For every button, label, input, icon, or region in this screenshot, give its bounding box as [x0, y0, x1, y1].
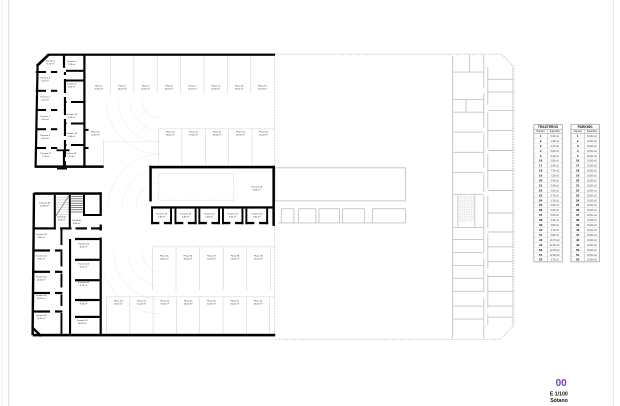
- svg-text:Plaza 23: Plaza 23: [236, 131, 245, 133]
- svg-text:Número: Número: [537, 130, 546, 133]
- svg-text:Trastero 9: Trastero 9: [40, 134, 51, 137]
- svg-text:50: 50: [576, 248, 580, 252]
- svg-text:3,70 m2: 3,70 m2: [551, 146, 560, 148]
- svg-text:17: 17: [539, 164, 543, 168]
- svg-text:16,00 m2: 16,00 m2: [587, 171, 597, 173]
- svg-text:52: 52: [539, 258, 543, 262]
- svg-text:16,00 m2: 16,00 m2: [587, 230, 597, 232]
- svg-text:Trastero 15: Trastero 15: [66, 132, 78, 135]
- svg-text:5,45 m²: 5,45 m²: [68, 116, 76, 119]
- svg-text:16,00 m2: 16,00 m2: [587, 161, 597, 163]
- svg-text:5,40 m²: 5,40 m²: [41, 118, 49, 121]
- svg-text:16,00 m2: 16,00 m2: [587, 141, 597, 143]
- svg-text:Trastero 23: Trastero 23: [78, 243, 90, 246]
- svg-text:5,40 m2: 5,40 m2: [551, 220, 560, 222]
- svg-text:Superficie: Superficie: [587, 130, 598, 133]
- svg-text:Trastero 22: Trastero 22: [227, 212, 239, 215]
- svg-text:40: 40: [576, 228, 580, 232]
- svg-text:24: 24: [539, 198, 543, 202]
- svg-text:16,00 m2: 16,00 m2: [587, 220, 597, 222]
- svg-text:9,85 m²: 9,85 m²: [253, 188, 261, 191]
- svg-text:16,00 m2: 16,00 m2: [587, 215, 597, 217]
- svg-text:16,00 m²: 16,00 m²: [114, 302, 123, 305]
- svg-text:16,00 m²: 16,00 m²: [118, 88, 127, 91]
- svg-text:5,85 m²: 5,85 m²: [253, 215, 261, 218]
- svg-text:16,00 m²: 16,00 m²: [211, 88, 220, 91]
- svg-text:16,00 m2: 16,00 m2: [587, 156, 597, 158]
- svg-text:16,00 m²: 16,00 m²: [184, 302, 193, 305]
- svg-text:16,00 m2: 16,00 m2: [587, 185, 597, 187]
- svg-text:42: 42: [576, 238, 580, 242]
- svg-text:7,70 m²: 7,70 m²: [42, 155, 50, 158]
- svg-text:Plaza 51: Plaza 51: [230, 300, 239, 302]
- svg-text:Trastero 19: Trastero 19: [156, 212, 168, 215]
- svg-text:3,70 m2: 3,70 m2: [551, 200, 560, 202]
- svg-text:38: 38: [539, 218, 543, 222]
- svg-text:5,40 m2: 5,40 m2: [551, 210, 560, 212]
- svg-text:36: 36: [576, 208, 580, 212]
- svg-text:16,00 m2: 16,00 m2: [587, 181, 597, 183]
- svg-text:PARKING: PARKING: [578, 125, 593, 129]
- svg-text:12,80 m²: 12,80 m²: [40, 204, 49, 207]
- svg-text:16,00 m²: 16,00 m²: [236, 133, 245, 136]
- svg-text:16,00 m²: 16,00 m²: [165, 88, 174, 91]
- svg-text:16,00 m²: 16,00 m²: [230, 302, 239, 305]
- svg-text:5,85 m²: 5,85 m²: [68, 85, 76, 88]
- svg-text:8,55 m²: 8,55 m²: [80, 246, 88, 249]
- svg-text:16,00 m²: 16,00 m²: [188, 88, 197, 91]
- svg-text:Plaza 19: Plaza 19: [258, 86, 267, 88]
- svg-text:Trastero 33: Trastero 33: [36, 233, 48, 236]
- svg-text:18: 18: [539, 169, 543, 173]
- svg-text:5,85 m²: 5,85 m²: [182, 215, 190, 218]
- svg-text:11,95 m2: 11,95 m2: [550, 245, 560, 247]
- svg-text:5,85 m²: 5,85 m²: [158, 215, 166, 218]
- svg-text:39: 39: [576, 223, 580, 227]
- svg-text:16,00 m²: 16,00 m²: [235, 88, 244, 91]
- svg-text:Trastero 45: Trastero 45: [251, 185, 263, 188]
- svg-text:16,00 m2: 16,00 m2: [587, 195, 597, 197]
- svg-text:41: 41: [576, 233, 580, 237]
- svg-text:16,00 m²: 16,00 m²: [166, 133, 175, 136]
- svg-text:10,05 m²: 10,05 m²: [78, 322, 87, 325]
- svg-text:16,00 m²: 16,00 m²: [207, 257, 216, 260]
- svg-text:Sótano: Sótano: [550, 398, 568, 404]
- svg-text:8,70 m²: 8,70 m²: [80, 302, 88, 305]
- svg-text:16,00 m2: 16,00 m2: [587, 260, 597, 262]
- svg-text:16,00 m2: 16,00 m2: [587, 205, 597, 207]
- svg-text:20: 20: [539, 179, 543, 183]
- svg-text:4,95 m²: 4,95 m²: [73, 222, 81, 225]
- svg-text:Plaza 25: Plaza 25: [160, 255, 169, 257]
- svg-text:Plaza 43: Plaza 43: [184, 300, 193, 302]
- svg-text:5,85 m²: 5,85 m²: [229, 215, 237, 218]
- svg-text:Plaza 50: Plaza 50: [207, 300, 216, 302]
- svg-text:16,00 m²: 16,00 m²: [258, 88, 267, 91]
- svg-text:16,00 m²: 16,00 m²: [141, 88, 150, 91]
- svg-text:25: 25: [539, 203, 543, 207]
- svg-text:Trastero 46: Trastero 46: [35, 314, 47, 317]
- svg-text:12,80 m2: 12,80 m2: [550, 255, 560, 257]
- svg-text:12,45 m2: 12,45 m2: [550, 250, 560, 252]
- svg-text:16,00 m2: 16,00 m2: [587, 250, 597, 252]
- svg-text:51: 51: [539, 253, 543, 257]
- svg-text:43: 43: [539, 243, 543, 247]
- svg-text:5,40 m2: 5,40 m2: [551, 166, 560, 168]
- svg-text:8,70 m²: 8,70 m²: [80, 266, 88, 269]
- svg-text:Plaza 42: Plaza 42: [161, 300, 170, 302]
- svg-text:16,00 m²: 16,00 m²: [160, 257, 169, 260]
- svg-text:00: 00: [556, 378, 568, 389]
- svg-text:Trastero 25: Trastero 25: [78, 281, 90, 284]
- svg-text:10,05 m²: 10,05 m²: [37, 297, 46, 300]
- svg-text:16,00 m2: 16,00 m2: [587, 225, 597, 227]
- svg-text:Plaza 36: Plaza 36: [184, 255, 193, 257]
- svg-text:5,40 m2: 5,40 m2: [551, 156, 560, 158]
- svg-text:4,90 m²: 4,90 m²: [58, 219, 66, 222]
- svg-text:Plaza 39: Plaza 39: [254, 255, 263, 257]
- svg-text:3,80 m2: 3,80 m2: [551, 225, 560, 227]
- svg-text:Trastero 41: Trastero 41: [36, 255, 48, 258]
- svg-text:Plaza 22: Plaza 22: [213, 131, 222, 133]
- svg-text:16,00 m²: 16,00 m²: [254, 257, 263, 260]
- svg-text:22: 22: [539, 188, 543, 192]
- svg-text:20: 20: [576, 179, 580, 183]
- svg-text:16,00 m2: 16,00 m2: [587, 210, 597, 212]
- svg-text:Plaza 38: Plaza 38: [231, 255, 240, 257]
- svg-text:5,20 m2: 5,20 m2: [551, 151, 560, 153]
- svg-text:10,20 m²: 10,20 m²: [37, 317, 46, 320]
- svg-text:25: 25: [576, 203, 580, 207]
- svg-text:Plaza 21: Plaza 21: [189, 131, 198, 133]
- svg-text:39: 39: [539, 223, 543, 227]
- svg-text:Vestíbulo: Vestíbulo: [72, 219, 82, 222]
- svg-text:Trastero 11: Trastero 11: [40, 152, 52, 155]
- svg-text:17: 17: [576, 164, 580, 168]
- svg-text:Trastero 5: Trastero 5: [40, 96, 51, 99]
- svg-text:Plaza 3: Plaza 3: [142, 86, 150, 88]
- svg-text:38: 38: [576, 218, 580, 222]
- svg-text:23: 23: [539, 193, 543, 197]
- svg-text:42: 42: [539, 238, 543, 242]
- svg-text:Plaza 40: Plaza 40: [114, 300, 123, 302]
- svg-text:Plaza 18: Plaza 18: [235, 86, 244, 88]
- svg-text:10,70 m2: 10,70 m2: [550, 240, 560, 242]
- svg-text:Plaza 2: Plaza 2: [118, 86, 126, 88]
- svg-text:16,00 m2: 16,00 m2: [587, 240, 597, 242]
- svg-text:16,00 m²: 16,00 m²: [259, 133, 268, 136]
- svg-text:19: 19: [539, 174, 543, 178]
- svg-text:Trastero 16: Trastero 16: [65, 152, 77, 155]
- svg-text:8,85 m²: 8,85 m²: [38, 236, 46, 239]
- svg-text:Trastero 31: Trastero 31: [76, 319, 88, 322]
- svg-text:52: 52: [576, 258, 580, 262]
- svg-text:16,00 m²: 16,00 m²: [213, 133, 222, 136]
- svg-text:Plaza 4: Plaza 4: [165, 86, 173, 88]
- svg-text:Trastero 42: Trastero 42: [35, 276, 47, 279]
- svg-text:Plaza 5: Plaza 5: [189, 86, 197, 88]
- svg-text:E 1/100: E 1/100: [550, 391, 568, 397]
- svg-text:50: 50: [539, 248, 543, 252]
- svg-text:7,20 m²: 7,20 m²: [67, 155, 75, 158]
- svg-text:16,00 m²: 16,00 m²: [160, 302, 169, 305]
- svg-text:37: 37: [539, 213, 543, 217]
- svg-text:5,40 m²: 5,40 m²: [68, 135, 76, 138]
- svg-text:3,50 m2: 3,50 m2: [551, 190, 560, 192]
- svg-text:Trastero 20: Trastero 20: [180, 212, 192, 215]
- svg-text:Trastero 3: Trastero 3: [40, 76, 51, 79]
- svg-text:16,00 m²: 16,00 m²: [91, 133, 100, 136]
- svg-text:16,00 m²: 16,00 m²: [94, 88, 103, 91]
- svg-text:16,00 m²: 16,00 m²: [189, 133, 198, 136]
- svg-text:51: 51: [576, 253, 580, 257]
- svg-text:Trastero 44: Trastero 44: [39, 201, 51, 204]
- svg-text:3,80 m2: 3,80 m2: [551, 235, 560, 237]
- svg-text:21: 21: [576, 183, 580, 187]
- svg-text:3,70 m2: 3,70 m2: [551, 260, 560, 262]
- svg-text:40: 40: [539, 228, 543, 232]
- svg-text:5,40 m2: 5,40 m2: [551, 136, 560, 138]
- svg-text:7,25 m²: 7,25 m²: [68, 63, 76, 66]
- svg-text:5,50 m2: 5,50 m2: [551, 205, 560, 207]
- svg-text:36: 36: [539, 208, 543, 212]
- svg-text:5,45 m2: 5,45 m2: [551, 181, 560, 183]
- svg-text:Superficie: Superficie: [550, 130, 561, 133]
- svg-text:16,00 m2: 16,00 m2: [587, 255, 597, 257]
- svg-text:5,40 m²: 5,40 m²: [41, 137, 49, 140]
- svg-text:37: 37: [576, 213, 580, 217]
- svg-text:Vestíbulo: Vestíbulo: [57, 216, 67, 219]
- svg-text:16,00 m2: 16,00 m2: [587, 235, 597, 237]
- svg-text:16,00 m²: 16,00 m²: [137, 302, 146, 305]
- svg-text:Trastero 21: Trastero 21: [204, 212, 216, 215]
- svg-text:16,00 m2: 16,00 m2: [587, 245, 597, 247]
- svg-text:Trastero 1: Trastero 1: [46, 59, 57, 62]
- svg-text:Número: Número: [574, 130, 583, 133]
- svg-text:Plaza 20: Plaza 20: [166, 131, 175, 133]
- svg-text:Trastero 4: Trastero 4: [67, 82, 78, 85]
- svg-text:Plaza 16: Plaza 16: [91, 131, 100, 133]
- svg-text:Trastero 2: Trastero 2: [67, 60, 78, 63]
- svg-text:16,00 m²: 16,00 m²: [207, 302, 216, 305]
- svg-text:16: 16: [576, 159, 580, 163]
- svg-text:Plaza 24: Plaza 24: [259, 131, 268, 133]
- svg-text:24: 24: [576, 198, 580, 202]
- svg-text:16,00 m²: 16,00 m²: [183, 257, 192, 260]
- svg-text:8,85 m²: 8,85 m²: [38, 258, 46, 261]
- svg-text:3,50 m2: 3,50 m2: [551, 161, 560, 163]
- svg-text:23: 23: [576, 193, 580, 197]
- svg-text:16,00 m2: 16,00 m2: [587, 136, 597, 138]
- svg-text:19: 19: [576, 174, 580, 178]
- svg-text:10,05 m²: 10,05 m²: [37, 279, 46, 282]
- svg-text:5,70 m2: 5,70 m2: [551, 195, 560, 197]
- svg-text:Plaza 1: Plaza 1: [95, 86, 103, 88]
- svg-text:41: 41: [539, 233, 543, 237]
- svg-text:16,00 m2: 16,00 m2: [587, 200, 597, 202]
- svg-text:Trastero 27: Trastero 27: [78, 299, 90, 302]
- svg-text:5,60 m2: 5,60 m2: [551, 215, 560, 217]
- svg-text:TRASTEROS: TRASTEROS: [538, 125, 559, 129]
- svg-text:Plaza 17: Plaza 17: [211, 86, 220, 88]
- svg-text:Plaza 41: Plaza 41: [137, 300, 146, 302]
- svg-text:Trastero 24: Trastero 24: [78, 263, 90, 266]
- svg-text:5,40 m²: 5,40 m²: [41, 79, 49, 82]
- svg-text:3,70 m2: 3,70 m2: [551, 230, 560, 232]
- svg-text:16,00 m²: 16,00 m²: [231, 257, 240, 260]
- svg-text:16,00 m2: 16,00 m2: [587, 190, 597, 192]
- svg-text:21: 21: [539, 183, 543, 187]
- svg-text:7,25 m2: 7,25 m2: [551, 176, 560, 178]
- svg-text:5,85 m²: 5,85 m²: [205, 215, 213, 218]
- svg-text:Trastero 13: Trastero 13: [66, 113, 78, 116]
- svg-text:Trastero 43: Trastero 43: [35, 294, 47, 297]
- svg-text:Plaza 52: Plaza 52: [254, 300, 263, 302]
- svg-text:16,00 m2: 16,00 m2: [587, 166, 597, 168]
- svg-text:5,40 m2: 5,40 m2: [551, 185, 560, 187]
- svg-text:16,00 m2: 16,00 m2: [587, 151, 597, 153]
- svg-text:5,70 m²: 5,70 m²: [47, 62, 55, 65]
- svg-text:Trastero 23: Trastero 23: [251, 212, 263, 215]
- svg-text:8,70 m²: 8,70 m²: [80, 284, 88, 287]
- svg-text:7,70 m2: 7,70 m2: [551, 171, 560, 173]
- svg-text:16: 16: [539, 159, 543, 163]
- svg-text:43: 43: [576, 243, 580, 247]
- svg-text:1,45 m2: 1,45 m2: [551, 141, 560, 143]
- svg-text:2,40 m²: 2,40 m²: [41, 99, 49, 102]
- svg-text:16,00 m²: 16,00 m²: [254, 302, 263, 305]
- svg-text:Plaza 37: Plaza 37: [207, 255, 216, 257]
- svg-text:16,00 m2: 16,00 m2: [587, 146, 597, 148]
- svg-text:16,00 m2: 16,00 m2: [587, 176, 597, 178]
- svg-text:22: 22: [576, 188, 580, 192]
- svg-text:Trastero 7: Trastero 7: [40, 115, 51, 118]
- svg-text:18: 18: [576, 169, 580, 173]
